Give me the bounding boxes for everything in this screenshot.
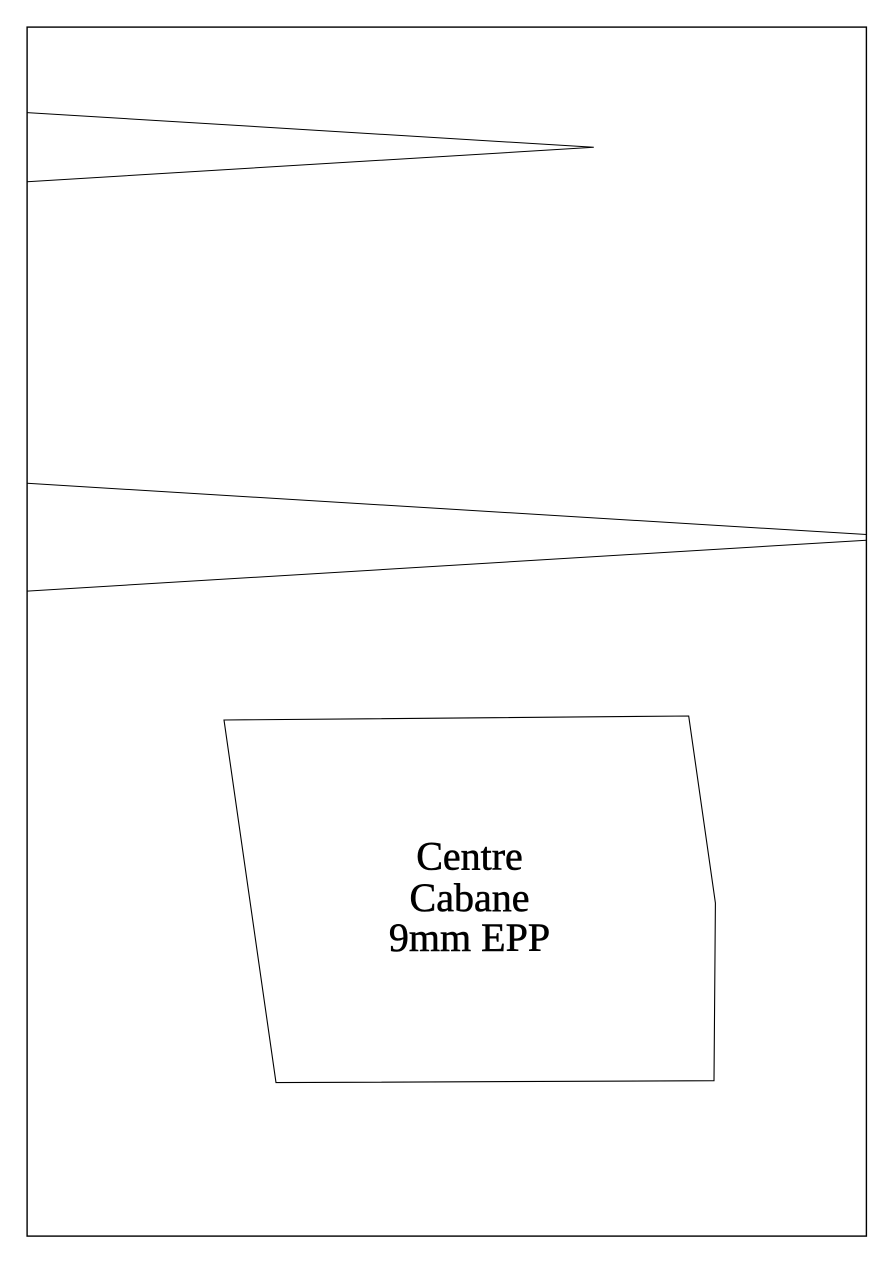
svg-text:Centre: Centre: [416, 834, 523, 879]
svg-text:Cabane: Cabane: [410, 875, 530, 920]
svg-text:9mm EPP: 9mm EPP: [389, 915, 550, 960]
